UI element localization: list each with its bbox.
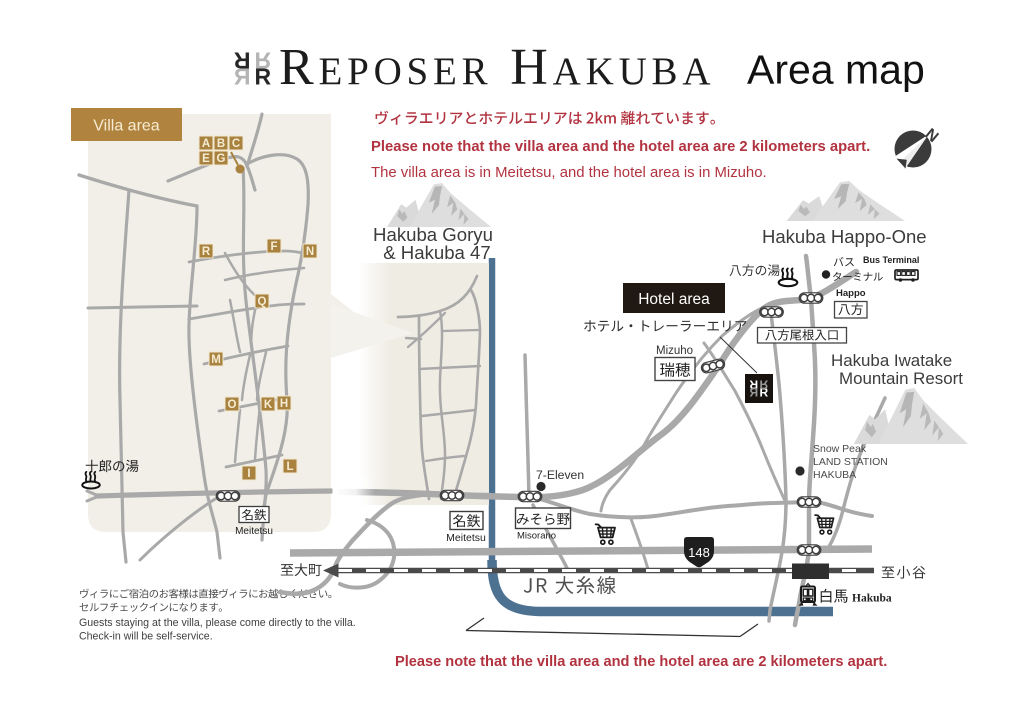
svg-text:R: R [255, 48, 272, 74]
svg-text:B: B [217, 138, 225, 150]
svg-text:HAKUBA: HAKUBA [813, 469, 856, 481]
svg-text:Meitetsu: Meitetsu [446, 532, 486, 544]
svg-text:N: N [306, 246, 314, 258]
svg-text:Hakuba: Hakuba [852, 593, 892, 605]
svg-text:O: O [228, 399, 237, 411]
svg-text:K: K [264, 399, 273, 411]
svg-text:Misorano: Misorano [517, 531, 556, 542]
svg-text:E: E [202, 153, 210, 165]
svg-text:Villa area: Villa area [93, 118, 160, 135]
svg-text:F: F [270, 241, 277, 253]
svg-text:R: R [202, 246, 211, 258]
svg-text:G: G [217, 153, 226, 165]
svg-text:Hotel area: Hotel area [638, 291, 710, 308]
svg-text:H: H [280, 398, 288, 410]
svg-text:Snow Peak: Snow Peak [813, 443, 867, 455]
svg-text:L: L [286, 461, 293, 473]
svg-text:I: I [247, 468, 250, 480]
svg-text:M: M [211, 354, 221, 366]
svg-text:C: C [232, 138, 240, 150]
svg-text:Q: Q [258, 296, 267, 308]
svg-text:Please note that the villa are: Please note that the villa area and the … [395, 654, 887, 670]
svg-text:R: R [749, 386, 758, 400]
svg-text:Mountain Resort: Mountain Resort [839, 369, 963, 388]
svg-text:148: 148 [688, 545, 710, 560]
svg-text:& Hakuba 47: & Hakuba 47 [383, 242, 491, 263]
svg-text:Please note that the villa are: Please note that the villa area and the … [371, 139, 870, 155]
svg-text:Area map: Area map [747, 47, 925, 93]
svg-text:A: A [202, 138, 210, 150]
svg-text:LAND STATION: LAND STATION [813, 456, 888, 468]
svg-text:R: R [760, 378, 769, 392]
svg-text:R: R [234, 64, 251, 90]
svg-text:7-Eleven: 7-Eleven [536, 468, 584, 482]
svg-text:Hakuba Happo-One: Hakuba Happo-One [762, 226, 927, 247]
svg-text:Check-in will be self-service.: Check-in will be self-service. [79, 631, 213, 643]
svg-text:The villa area is in Meitetsu,: The villa area is in Meitetsu, and the h… [371, 165, 767, 181]
svg-text:Mizuho: Mizuho [656, 345, 693, 357]
svg-text:Guests staying at the villa, p: Guests staying at the villa, please come… [79, 617, 356, 629]
svg-text:Meitetsu: Meitetsu [235, 526, 273, 537]
svg-text:Hakuba Iwatake: Hakuba Iwatake [831, 351, 952, 370]
svg-text:Bus Terminal: Bus Terminal [863, 255, 919, 265]
svg-text:Happo: Happo [836, 288, 866, 299]
